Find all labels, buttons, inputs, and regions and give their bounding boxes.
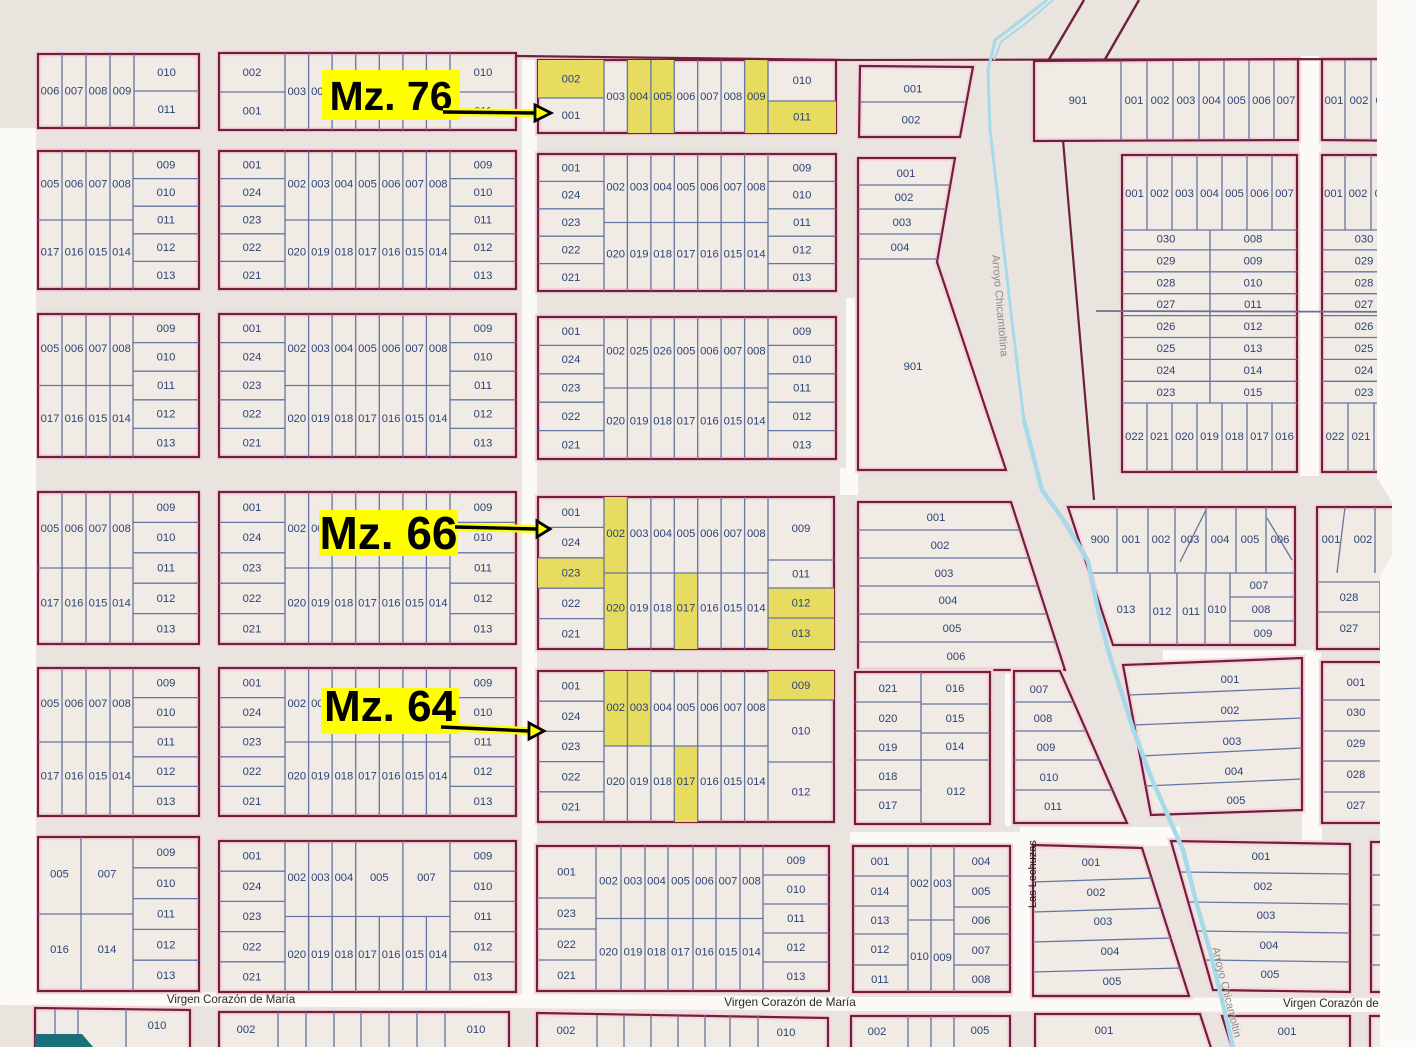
svg-text:006: 006 <box>695 875 714 887</box>
svg-text:017: 017 <box>358 949 377 961</box>
svg-text:012: 012 <box>793 411 812 423</box>
svg-text:009: 009 <box>113 86 132 98</box>
svg-text:011: 011 <box>871 974 889 986</box>
svg-text:022: 022 <box>1326 431 1345 443</box>
svg-text:005: 005 <box>677 346 696 358</box>
svg-text:011: 011 <box>1044 801 1062 813</box>
svg-text:001: 001 <box>1324 188 1343 200</box>
svg-text:003: 003 <box>1177 95 1196 107</box>
svg-text:018: 018 <box>879 771 898 783</box>
svg-text:017: 017 <box>677 603 696 615</box>
svg-text:024: 024 <box>562 537 581 549</box>
svg-text:015: 015 <box>89 413 108 425</box>
svg-text:007: 007 <box>405 179 424 191</box>
svg-text:003: 003 <box>1175 188 1194 200</box>
svg-text:001: 001 <box>904 84 923 96</box>
svg-text:015: 015 <box>89 598 108 610</box>
svg-text:010: 010 <box>157 707 176 719</box>
svg-text:003: 003 <box>1094 916 1113 928</box>
svg-text:009: 009 <box>474 677 493 689</box>
svg-text:014: 014 <box>429 598 448 610</box>
svg-text:018: 018 <box>653 603 672 615</box>
svg-text:003: 003 <box>630 702 649 714</box>
svg-text:013: 013 <box>792 628 811 640</box>
svg-text:014: 014 <box>1244 365 1263 377</box>
svg-text:011: 011 <box>474 737 492 749</box>
svg-text:030: 030 <box>1157 234 1176 246</box>
svg-text:029: 029 <box>1347 738 1366 750</box>
svg-text:010: 010 <box>157 187 176 199</box>
svg-text:001: 001 <box>562 681 581 693</box>
svg-text:009: 009 <box>157 323 176 335</box>
svg-text:008: 008 <box>89 86 108 98</box>
svg-text:013: 013 <box>1244 343 1263 355</box>
svg-text:008: 008 <box>429 179 448 191</box>
svg-text:001: 001 <box>1325 95 1344 107</box>
svg-text:001: 001 <box>562 162 581 174</box>
svg-text:010: 010 <box>474 187 493 199</box>
svg-text:004: 004 <box>653 528 672 540</box>
svg-text:017: 017 <box>358 598 377 610</box>
svg-text:001: 001 <box>1221 674 1240 686</box>
svg-text:Mz. 66: Mz. 66 <box>319 507 457 559</box>
svg-text:018: 018 <box>653 249 672 261</box>
svg-text:005: 005 <box>671 875 690 887</box>
svg-text:010: 010 <box>474 67 493 79</box>
svg-text:010: 010 <box>1208 604 1227 616</box>
svg-text:001: 001 <box>243 851 262 863</box>
svg-text:021: 021 <box>562 802 581 814</box>
svg-text:018: 018 <box>335 413 354 425</box>
svg-text:006: 006 <box>65 179 84 191</box>
svg-text:012: 012 <box>792 787 811 799</box>
svg-text:012: 012 <box>871 944 890 956</box>
svg-text:017: 017 <box>358 771 377 783</box>
svg-text:016: 016 <box>700 415 719 427</box>
svg-text:015: 015 <box>405 598 424 610</box>
svg-text:003: 003 <box>893 217 912 229</box>
svg-text:002: 002 <box>931 540 950 552</box>
svg-text:005: 005 <box>677 702 696 714</box>
svg-text:020: 020 <box>287 949 306 961</box>
svg-text:004: 004 <box>630 91 649 103</box>
svg-text:011: 011 <box>157 380 175 392</box>
svg-text:016: 016 <box>700 249 719 261</box>
svg-text:022: 022 <box>243 409 262 421</box>
svg-text:900: 900 <box>1091 534 1110 546</box>
svg-text:014: 014 <box>112 771 131 783</box>
svg-text:010: 010 <box>474 532 493 544</box>
svg-text:007: 007 <box>1275 188 1294 200</box>
svg-text:012: 012 <box>157 593 176 605</box>
svg-text:009: 009 <box>157 159 176 171</box>
svg-text:002: 002 <box>1151 95 1170 107</box>
svg-text:021: 021 <box>557 970 576 982</box>
svg-text:001: 001 <box>897 168 916 180</box>
svg-text:003: 003 <box>311 343 330 355</box>
svg-text:016: 016 <box>700 776 719 788</box>
svg-text:023: 023 <box>562 383 581 395</box>
svg-text:019: 019 <box>311 949 330 961</box>
svg-text:011: 011 <box>474 215 492 227</box>
svg-text:027: 027 <box>1347 800 1366 812</box>
svg-text:004: 004 <box>891 242 910 254</box>
svg-text:005: 005 <box>370 872 389 884</box>
svg-text:010: 010 <box>793 75 812 87</box>
svg-text:019: 019 <box>1200 431 1219 443</box>
svg-text:019: 019 <box>630 415 649 427</box>
svg-text:010: 010 <box>792 726 811 738</box>
svg-text:008: 008 <box>112 343 131 355</box>
svg-text:013: 013 <box>157 270 176 282</box>
svg-text:010: 010 <box>793 190 812 202</box>
svg-text:012: 012 <box>474 409 493 421</box>
svg-text:011: 011 <box>792 569 810 581</box>
svg-text:018: 018 <box>653 776 672 788</box>
svg-text:008: 008 <box>972 974 991 986</box>
svg-text:016: 016 <box>65 413 84 425</box>
svg-text:001: 001 <box>557 867 576 879</box>
svg-text:010: 010 <box>474 707 493 719</box>
svg-text:025: 025 <box>1355 343 1374 355</box>
svg-text:022: 022 <box>562 771 581 783</box>
svg-text:006: 006 <box>700 528 719 540</box>
svg-text:001: 001 <box>1252 851 1271 863</box>
svg-text:021: 021 <box>879 683 898 695</box>
svg-text:012: 012 <box>474 593 493 605</box>
svg-text:004: 004 <box>972 856 991 868</box>
svg-text:008: 008 <box>112 698 131 710</box>
svg-text:006: 006 <box>972 915 991 927</box>
svg-text:003: 003 <box>311 179 330 191</box>
svg-text:010: 010 <box>1244 277 1263 289</box>
svg-text:009: 009 <box>474 502 493 514</box>
svg-text:019: 019 <box>311 771 330 783</box>
svg-text:014: 014 <box>429 413 448 425</box>
svg-text:018: 018 <box>335 598 354 610</box>
svg-text:001: 001 <box>243 323 262 335</box>
svg-text:013: 013 <box>793 439 812 451</box>
svg-text:013: 013 <box>157 437 176 449</box>
svg-text:022: 022 <box>243 941 262 953</box>
svg-text:001: 001 <box>243 106 262 118</box>
svg-text:007: 007 <box>98 869 117 881</box>
svg-text:014: 014 <box>112 413 131 425</box>
svg-text:011: 011 <box>158 104 176 116</box>
svg-text:012: 012 <box>947 786 966 798</box>
svg-text:007: 007 <box>89 698 108 710</box>
svg-text:008: 008 <box>1244 234 1263 246</box>
svg-text:005: 005 <box>943 623 962 635</box>
svg-text:014: 014 <box>112 598 131 610</box>
svg-text:002: 002 <box>287 698 306 710</box>
svg-text:011: 011 <box>157 215 175 227</box>
svg-text:023: 023 <box>557 908 576 920</box>
svg-text:011: 011 <box>157 909 175 921</box>
svg-text:006: 006 <box>1250 188 1269 200</box>
svg-text:005: 005 <box>41 698 60 710</box>
svg-text:021: 021 <box>243 972 262 984</box>
svg-text:001: 001 <box>1347 677 1366 689</box>
svg-text:015: 015 <box>724 415 743 427</box>
svg-text:019: 019 <box>630 249 649 261</box>
svg-text:024: 024 <box>243 881 262 893</box>
svg-text:019: 019 <box>879 742 898 754</box>
svg-text:020: 020 <box>606 603 625 615</box>
svg-text:005: 005 <box>1103 976 1122 988</box>
svg-text:013: 013 <box>793 272 812 284</box>
svg-text:024: 024 <box>1355 365 1374 377</box>
svg-text:018: 018 <box>335 246 354 258</box>
svg-text:003: 003 <box>933 878 952 890</box>
svg-text:008: 008 <box>112 523 131 535</box>
svg-text:013: 013 <box>474 972 493 984</box>
svg-text:015: 015 <box>1244 387 1263 399</box>
svg-text:019: 019 <box>624 947 643 959</box>
svg-text:012: 012 <box>474 242 493 254</box>
svg-text:015: 015 <box>89 246 108 258</box>
svg-text:005: 005 <box>41 343 60 355</box>
svg-text:Virgen Corazón de María: Virgen Corazón de María <box>167 994 296 1006</box>
svg-text:022: 022 <box>562 598 581 610</box>
svg-text:008: 008 <box>1252 604 1271 616</box>
svg-text:002: 002 <box>902 115 921 127</box>
svg-text:029: 029 <box>1355 256 1374 268</box>
svg-text:015: 015 <box>724 603 743 615</box>
svg-text:018: 018 <box>653 415 672 427</box>
svg-text:010: 010 <box>467 1024 486 1036</box>
svg-text:017: 017 <box>41 598 60 610</box>
svg-text:017: 017 <box>677 776 696 788</box>
svg-text:024: 024 <box>1157 365 1176 377</box>
svg-text:002: 002 <box>557 1025 576 1037</box>
svg-text:022: 022 <box>243 593 262 605</box>
svg-text:005: 005 <box>971 1025 990 1037</box>
svg-text:004: 004 <box>1202 95 1221 107</box>
svg-text:006: 006 <box>700 346 719 358</box>
svg-text:020: 020 <box>287 771 306 783</box>
svg-text:009: 009 <box>157 847 176 859</box>
svg-text:007: 007 <box>724 702 743 714</box>
svg-text:007: 007 <box>405 343 424 355</box>
svg-text:002: 002 <box>1221 705 1240 717</box>
svg-text:021: 021 <box>243 623 262 635</box>
svg-text:006: 006 <box>677 91 696 103</box>
svg-text:022: 022 <box>557 939 576 951</box>
svg-text:002: 002 <box>895 192 914 204</box>
svg-text:024: 024 <box>243 187 262 199</box>
svg-text:015: 015 <box>724 249 743 261</box>
svg-text:020: 020 <box>879 713 898 725</box>
svg-text:012: 012 <box>157 766 176 778</box>
svg-text:001: 001 <box>243 159 262 171</box>
svg-text:011: 011 <box>474 563 492 575</box>
svg-text:004: 004 <box>1260 940 1279 952</box>
svg-text:011: 011 <box>1244 299 1262 311</box>
svg-text:003: 003 <box>630 528 649 540</box>
svg-text:005: 005 <box>50 869 69 881</box>
svg-text:009: 009 <box>792 680 811 692</box>
svg-text:024: 024 <box>562 711 581 723</box>
svg-text:021: 021 <box>1150 431 1169 443</box>
svg-text:020: 020 <box>606 415 625 427</box>
svg-text:005: 005 <box>1227 795 1246 807</box>
svg-text:009: 009 <box>474 851 493 863</box>
svg-text:010: 010 <box>157 352 176 364</box>
svg-text:021: 021 <box>562 628 581 640</box>
svg-text:003: 003 <box>935 568 954 580</box>
svg-text:026: 026 <box>1355 321 1374 333</box>
svg-text:010: 010 <box>1040 772 1059 784</box>
svg-text:002: 002 <box>1254 881 1273 893</box>
svg-text:011: 011 <box>157 737 175 749</box>
svg-text:028: 028 <box>1157 277 1176 289</box>
svg-text:012: 012 <box>474 941 493 953</box>
svg-text:027: 027 <box>1157 299 1176 311</box>
svg-text:018: 018 <box>335 771 354 783</box>
svg-text:002: 002 <box>868 1026 887 1038</box>
svg-text:026: 026 <box>1157 321 1176 333</box>
svg-text:016: 016 <box>946 683 965 695</box>
svg-text:023: 023 <box>243 380 262 392</box>
svg-text:009: 009 <box>787 855 806 867</box>
svg-text:007: 007 <box>89 523 108 535</box>
svg-text:017: 017 <box>671 947 690 959</box>
svg-text:017: 017 <box>677 415 696 427</box>
svg-text:001: 001 <box>562 326 581 338</box>
svg-text:014: 014 <box>742 947 761 959</box>
svg-text:002: 002 <box>606 182 625 194</box>
svg-text:011: 011 <box>474 911 492 923</box>
svg-text:012: 012 <box>157 409 176 421</box>
svg-text:020: 020 <box>599 947 618 959</box>
svg-text:019: 019 <box>630 776 649 788</box>
svg-text:024: 024 <box>562 190 581 202</box>
svg-text:008: 008 <box>112 179 131 191</box>
svg-text:021: 021 <box>1352 431 1371 443</box>
svg-text:Virgen Corazón de María: Virgen Corazón de María <box>724 995 856 1009</box>
svg-text:005: 005 <box>653 91 672 103</box>
svg-text:013: 013 <box>787 971 806 983</box>
svg-text:006: 006 <box>947 651 966 663</box>
svg-text:001: 001 <box>871 856 890 868</box>
svg-text:014: 014 <box>946 741 965 753</box>
svg-text:Mz. 76: Mz. 76 <box>329 73 452 119</box>
svg-text:006: 006 <box>41 86 60 98</box>
svg-text:019: 019 <box>311 246 330 258</box>
svg-text:003: 003 <box>606 91 625 103</box>
svg-text:011: 011 <box>157 563 175 575</box>
svg-text:007: 007 <box>724 182 743 194</box>
svg-text:007: 007 <box>700 91 719 103</box>
svg-text:014: 014 <box>747 249 766 261</box>
svg-text:001: 001 <box>1082 857 1101 869</box>
svg-text:002: 002 <box>1350 95 1369 107</box>
svg-text:002: 002 <box>599 875 618 887</box>
svg-text:013: 013 <box>157 796 176 808</box>
svg-text:012: 012 <box>787 942 806 954</box>
svg-text:007: 007 <box>724 528 743 540</box>
svg-text:002: 002 <box>1152 534 1171 546</box>
svg-text:016: 016 <box>50 944 69 956</box>
svg-text:023: 023 <box>1157 387 1176 399</box>
svg-text:009: 009 <box>793 162 812 174</box>
svg-text:022: 022 <box>243 242 262 254</box>
svg-text:009: 009 <box>157 677 176 689</box>
svg-text:017: 017 <box>1250 431 1269 443</box>
svg-text:014: 014 <box>871 886 890 898</box>
svg-text:021: 021 <box>562 272 581 284</box>
svg-text:002: 002 <box>1354 534 1373 546</box>
svg-text:029: 029 <box>1157 256 1176 268</box>
svg-text:013: 013 <box>474 623 493 635</box>
svg-text:018: 018 <box>647 947 666 959</box>
svg-text:019: 019 <box>630 603 649 615</box>
svg-text:012: 012 <box>474 766 493 778</box>
svg-text:001: 001 <box>1322 534 1341 546</box>
svg-text:010: 010 <box>157 532 176 544</box>
svg-text:005: 005 <box>358 179 377 191</box>
svg-text:011: 011 <box>793 383 811 395</box>
svg-text:006: 006 <box>382 343 401 355</box>
svg-text:014: 014 <box>112 246 131 258</box>
svg-text:002: 002 <box>287 872 306 884</box>
svg-text:009: 009 <box>157 502 176 514</box>
svg-text:010: 010 <box>474 352 493 364</box>
svg-text:028: 028 <box>1340 592 1359 604</box>
svg-text:012: 012 <box>793 245 812 257</box>
svg-text:021: 021 <box>243 796 262 808</box>
svg-text:013: 013 <box>474 796 493 808</box>
svg-text:015: 015 <box>405 413 424 425</box>
svg-text:007: 007 <box>417 872 436 884</box>
svg-text:015: 015 <box>405 771 424 783</box>
svg-text:007: 007 <box>1250 580 1269 592</box>
svg-text:022: 022 <box>562 411 581 423</box>
svg-text:012: 012 <box>157 939 176 951</box>
svg-text:016: 016 <box>700 603 719 615</box>
svg-text:002: 002 <box>1349 188 1368 200</box>
svg-text:002: 002 <box>606 346 625 358</box>
svg-text:004: 004 <box>1101 946 1120 958</box>
svg-text:003: 003 <box>624 875 643 887</box>
svg-text:020: 020 <box>287 246 306 258</box>
svg-text:007: 007 <box>724 346 743 358</box>
svg-text:001: 001 <box>243 502 262 514</box>
svg-text:024: 024 <box>562 354 581 366</box>
svg-text:005: 005 <box>1261 969 1280 981</box>
svg-text:010: 010 <box>474 881 493 893</box>
svg-text:008: 008 <box>1034 713 1053 725</box>
svg-text:021: 021 <box>243 437 262 449</box>
svg-text:016: 016 <box>382 598 401 610</box>
svg-text:008: 008 <box>429 343 448 355</box>
svg-text:018: 018 <box>335 949 354 961</box>
svg-text:005: 005 <box>677 182 696 194</box>
svg-text:014: 014 <box>747 415 766 427</box>
svg-text:023: 023 <box>562 568 581 580</box>
svg-text:003: 003 <box>1257 910 1276 922</box>
svg-text:023: 023 <box>243 911 262 923</box>
svg-text:002: 002 <box>237 1024 256 1036</box>
svg-text:012: 012 <box>1153 606 1172 618</box>
svg-text:014: 014 <box>429 949 448 961</box>
svg-text:002: 002 <box>562 74 581 86</box>
svg-text:001: 001 <box>1122 534 1141 546</box>
svg-text:014: 014 <box>98 944 117 956</box>
svg-text:009: 009 <box>474 159 493 171</box>
svg-text:009: 009 <box>1254 628 1273 640</box>
